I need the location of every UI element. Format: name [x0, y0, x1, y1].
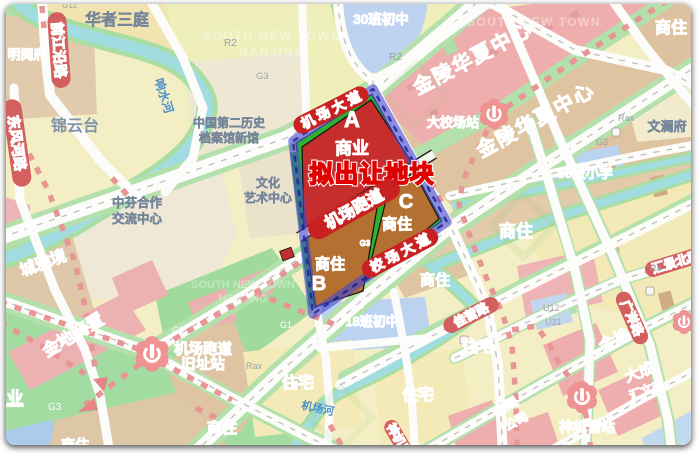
svg-text:G3: G3: [352, 301, 364, 311]
svg-text:锦云台: 锦云台: [51, 116, 99, 135]
svg-text:商住: 商住: [61, 437, 89, 445]
svg-text:文澜府: 文澜府: [647, 119, 686, 134]
svg-text:G3: G3: [256, 71, 269, 82]
svg-text:住宅: 住宅: [462, 337, 494, 356]
svg-text:R2: R2: [224, 38, 237, 49]
svg-text:G12: G12: [62, 4, 78, 10]
svg-text:住宅: 住宅: [282, 373, 314, 392]
svg-text:Rax: Rax: [618, 113, 635, 123]
svg-text:档案馆新馆: 档案馆新馆: [199, 130, 259, 145]
svg-text:Ra: Ra: [650, 263, 662, 273]
svg-text:机场跑道: 机场跑道: [174, 340, 232, 358]
svg-text:G1: G1: [172, 325, 184, 335]
svg-text:文化: 文化: [256, 175, 280, 190]
svg-text:NANJING: NANJING: [239, 45, 306, 59]
svg-text:B: B: [312, 273, 326, 295]
svg-text:商住: 商住: [420, 271, 450, 289]
svg-text:艺术中心: 艺术中心: [244, 190, 292, 205]
svg-text:商住: 商住: [499, 221, 533, 241]
svg-text:Rax: Rax: [246, 361, 263, 371]
svg-text:C: C: [399, 191, 413, 213]
svg-text:NANJING: NANJING: [218, 293, 268, 305]
svg-text:旧址站: 旧址站: [181, 355, 225, 373]
svg-text:U31: U31: [545, 317, 562, 327]
svg-text:30班初中: 30班初中: [353, 11, 409, 27]
svg-text:交流中心: 交流中心: [112, 211, 163, 226]
svg-text:业: 业: [7, 389, 24, 408]
svg-text:18班初中: 18班初中: [345, 314, 398, 329]
svg-text:商业: 商业: [335, 138, 369, 158]
svg-text:SOUTH NEW TOWN: SOUTH NEW TOWN: [467, 15, 601, 29]
svg-text:G1: G1: [280, 320, 292, 330]
svg-text:商住: 商住: [655, 18, 687, 37]
svg-text:G3: G3: [48, 402, 62, 413]
svg-text:住宅: 住宅: [402, 385, 434, 404]
svg-text:商住: 商住: [207, 419, 237, 437]
svg-text:R2: R2: [389, 52, 402, 63]
svg-text:华者三庭: 华者三庭: [85, 10, 149, 29]
svg-text:G3: G3: [596, 137, 608, 147]
svg-text:SOUTH NEW TOWN: SOUTH NEW TOWN: [191, 279, 295, 291]
svg-text:明阅府: 明阅府: [7, 47, 46, 62]
svg-text:中芬合作: 中芬合作: [112, 195, 163, 210]
svg-text:G3: G3: [360, 239, 371, 248]
svg-text:30班小学: 30班小学: [557, 165, 613, 181]
svg-text:商住: 商住: [315, 255, 345, 273]
svg-text:大校场站: 大校场站: [427, 115, 479, 130]
svg-text:U12: U12: [543, 303, 560, 313]
svg-text:拟出让地块: 拟出让地块: [310, 161, 435, 188]
svg-text:中国第二历史: 中国第二历史: [193, 115, 266, 130]
svg-text:神机营站: 神机营站: [559, 419, 615, 435]
svg-text:商住: 商住: [382, 215, 412, 233]
